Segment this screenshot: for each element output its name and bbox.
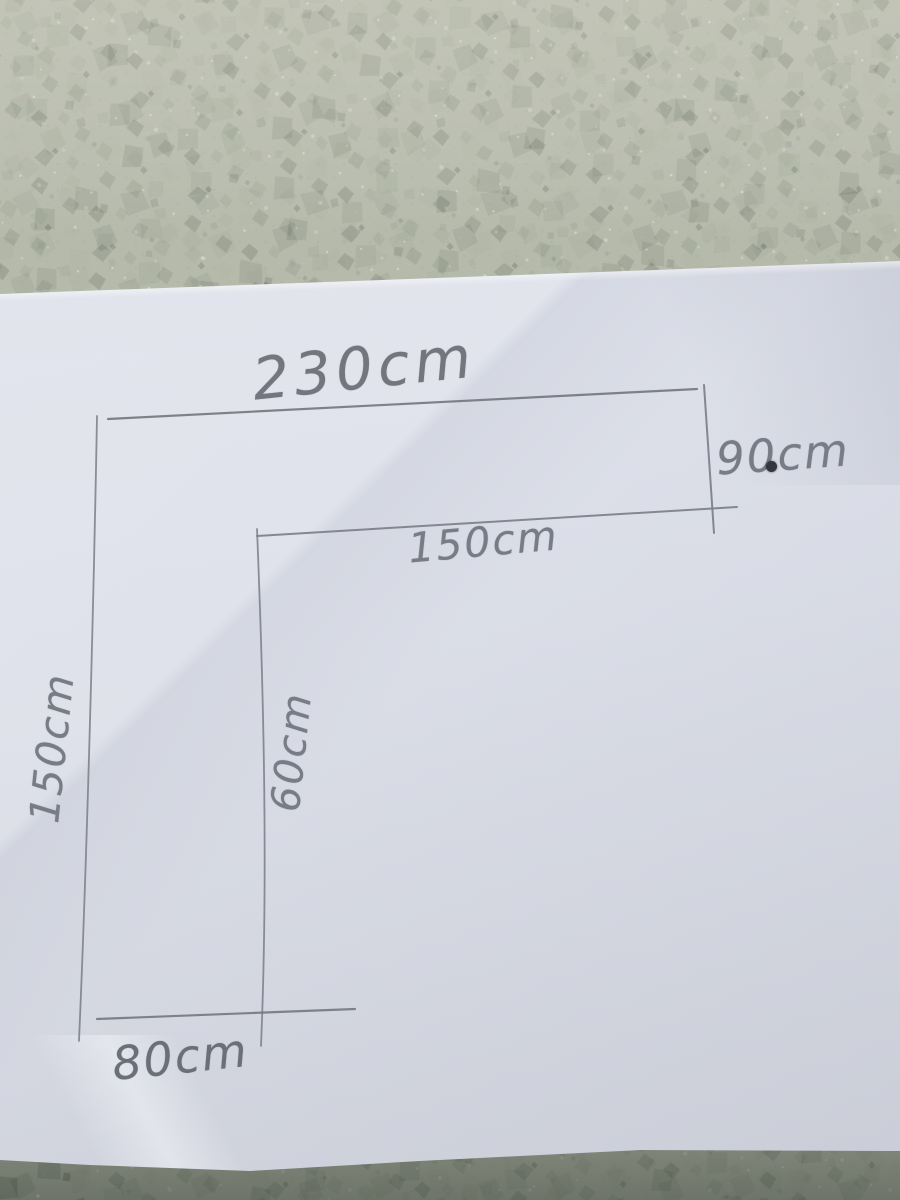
dim-line-bottom [97, 1009, 355, 1019]
dim-label-right: 90cm [714, 423, 851, 485]
pen-dot-in-zero [766, 461, 777, 472]
dim-line-right [704, 385, 714, 533]
dim-line-left [79, 416, 97, 1041]
photo-of-sketch: 230cm 90cm 150cm 150cm 60cm 80cm [0, 0, 900, 1200]
dim-line-inner-vertical [257, 529, 265, 1046]
